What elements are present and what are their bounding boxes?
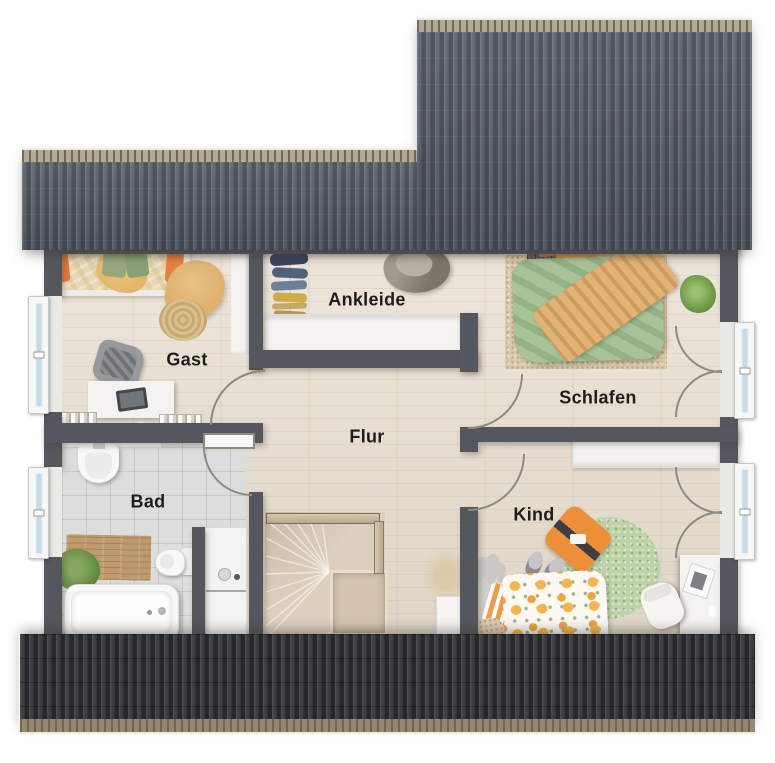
closet-shirt-yellow	[273, 292, 307, 302]
bathtub-drain	[147, 610, 152, 615]
wall-hall-kids-upper	[460, 442, 478, 452]
stair-well	[330, 570, 388, 636]
bathtub-faucet	[158, 607, 166, 615]
roof-upper-right	[417, 18, 752, 250]
wall-bath-hall	[249, 492, 263, 640]
roof-surface-left	[22, 162, 417, 250]
wall-closet-hall	[249, 350, 478, 368]
window-bath-handle	[33, 510, 44, 517]
shower-fixture	[234, 574, 240, 580]
wall-left-lower	[44, 557, 62, 640]
window-master	[734, 322, 755, 419]
toilet-bowl	[155, 549, 185, 576]
closet-hanger-1	[272, 302, 307, 309]
window-kids	[734, 463, 755, 560]
guest-round-rug	[159, 299, 207, 341]
wall-hall-kids-lower	[460, 507, 478, 640]
closet-clothes-pile-fold	[395, 250, 434, 279]
closet-shirt-blue	[271, 280, 307, 291]
roof-ridge-left	[22, 148, 417, 162]
roof-ridge-right	[417, 18, 752, 32]
kids-cloud-rug	[476, 558, 494, 576]
guest-laptop	[116, 387, 149, 412]
window-bath	[28, 467, 49, 559]
window-guest	[28, 296, 49, 414]
roof-lower	[18, 634, 755, 734]
wall-hall-master	[460, 313, 478, 372]
shower	[205, 527, 247, 642]
room-label-gast: Gast	[166, 350, 207, 371]
guest-laptop-screen	[119, 390, 145, 408]
room-label-bad: Bad	[131, 492, 166, 513]
roof-gutter	[20, 719, 755, 734]
floorplan-upper-floor: Gast Ankleide Schlafen Flur Bad Kind	[0, 0, 775, 763]
bath-sink-basin	[85, 453, 112, 479]
wall-right-lower	[720, 558, 738, 640]
window-master-handle	[739, 367, 750, 374]
wall-left-upper	[44, 246, 62, 296]
guest-armchair-cushion	[99, 346, 138, 382]
bath-door-leaf	[203, 433, 255, 449]
closet-wardrobe	[264, 314, 464, 354]
kids-mouse	[708, 606, 716, 617]
kids-cushion-bow	[570, 534, 586, 544]
stair-railing-top	[266, 513, 380, 524]
guest-wardrobe	[231, 250, 250, 354]
closet-jacket-gray	[272, 267, 308, 279]
shower-drain	[218, 568, 231, 581]
shower-glass-edge	[206, 590, 246, 592]
window-kids-handle	[739, 508, 750, 515]
stair-railing-right	[374, 521, 384, 574]
room-label-kind: Kind	[513, 505, 554, 526]
kids-laptop-keys	[690, 571, 707, 590]
room-label-ankleide: Ankleide	[328, 290, 405, 311]
master-plant	[680, 275, 716, 313]
window-guest-handle	[33, 352, 44, 359]
wall-shower-stub	[192, 527, 205, 640]
roof-surface-lower	[20, 634, 755, 719]
wall-master-kids	[460, 427, 738, 442]
bath-sink	[78, 444, 119, 483]
bath-sink-tap	[93, 442, 105, 449]
kids-duvet-dotted	[501, 569, 608, 642]
toilet-seat	[160, 554, 174, 569]
wall-right-upper	[720, 246, 738, 322]
room-label-schlafen: Schlafen	[559, 388, 636, 409]
roof-surface-right	[417, 32, 752, 250]
room-label-flur: Flur	[349, 427, 384, 448]
roof-upper-left	[22, 148, 417, 250]
bathtub-inner	[71, 591, 172, 635]
